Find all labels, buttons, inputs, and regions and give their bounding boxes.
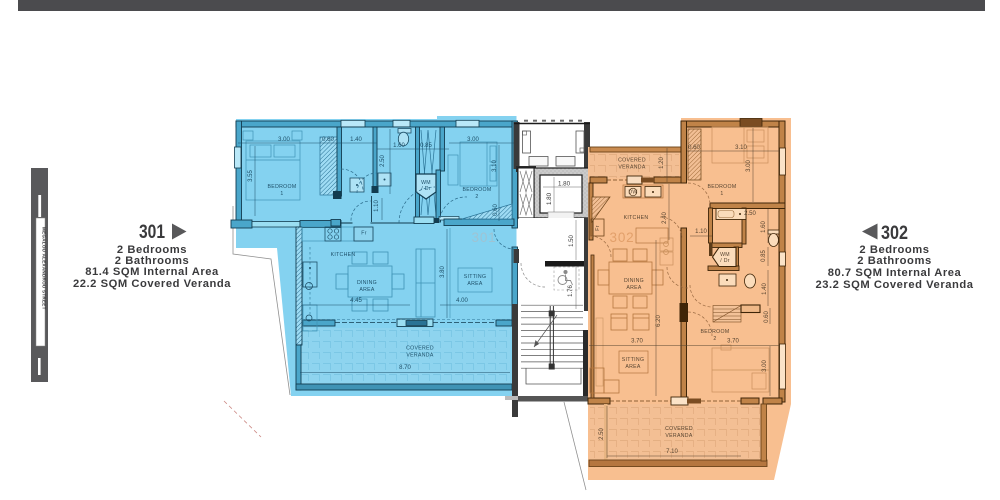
svg-text:2.50: 2.50 [744,211,756,217]
svg-text:22.2 SQM Covered Veranda: 22.2 SQM Covered Veranda [73,278,231,290]
svg-text:0.60: 0.60 [322,137,334,143]
svg-text:80.7 SQM Internal Area: 80.7 SQM Internal Area [828,267,962,279]
svg-text:1.10: 1.10 [374,200,380,212]
svg-text:3.70: 3.70 [631,339,643,345]
svg-text:VERANDA: VERANDA [406,353,433,359]
svg-text:1.60: 1.60 [761,221,767,233]
svg-text:3.55: 3.55 [248,170,254,182]
svg-text:BEDROOM: BEDROOM [701,329,730,335]
svg-text:VERANDA: VERANDA [665,433,692,439]
svg-text:3.00: 3.00 [746,160,752,172]
svg-text:302: 302 [881,222,908,244]
svg-text:1.40: 1.40 [762,283,768,295]
svg-text:3.10: 3.10 [735,145,747,151]
svg-text:AREA: AREA [626,285,642,291]
svg-text:0.60: 0.60 [493,204,499,216]
svg-text:1.80: 1.80 [546,192,553,205]
svg-text:301: 301 [472,230,497,245]
svg-text:KITCHEN: KITCHEN [331,252,356,258]
svg-text:1: 1 [280,191,283,197]
svg-text:1.40: 1.40 [350,137,362,143]
svg-text:4.00: 4.00 [456,298,468,304]
svg-text:1.20: 1.20 [659,157,665,169]
svg-text:BEDROOM: BEDROOM [463,187,492,193]
svg-text:81.4 SQM Internal Area: 81.4 SQM Internal Area [85,266,219,278]
svg-text:DINING: DINING [357,280,377,286]
svg-text:2: 2 [475,194,478,200]
svg-text:4.45: 4.45 [350,298,362,304]
svg-text:Fr: Fr [595,225,601,231]
svg-text:23.2 SQM Covered Veranda: 23.2 SQM Covered Veranda [815,279,973,291]
svg-text:1.76: 1.76 [568,285,574,297]
svg-text:2.50: 2.50 [380,155,386,167]
svg-text:1.50: 1.50 [569,235,575,247]
svg-text:1.10: 1.10 [695,229,707,235]
svg-text:0.85: 0.85 [420,143,432,149]
svg-text:SITTING: SITTING [464,274,487,280]
svg-text:BEDROOM: BEDROOM [708,184,737,190]
svg-text:2: 2 [713,336,716,342]
svg-text:3.00: 3.00 [762,360,768,372]
svg-text:Fr: Fr [361,231,367,237]
svg-text:3.80: 3.80 [440,266,446,278]
svg-text:8.70: 8.70 [399,365,411,371]
svg-text:DINING: DINING [624,278,644,284]
svg-text:1: 1 [720,191,723,197]
svg-text:AREA: AREA [625,364,641,370]
svg-text:0.60: 0.60 [688,145,700,151]
svg-text:SITTING: SITTING [622,357,645,363]
svg-text:3.70: 3.70 [727,339,739,345]
svg-text:3.00: 3.00 [467,137,479,143]
svg-text:AREA: AREA [359,287,375,293]
svg-text:2 Bathrooms: 2 Bathrooms [857,255,931,267]
svg-text:/ Dr: / Dr [421,186,431,192]
svg-text:KITCHEN: KITCHEN [624,215,649,221]
svg-text:302: 302 [610,230,635,245]
svg-text:VERANDA: VERANDA [618,165,645,171]
svg-text:1.60: 1.60 [393,143,405,149]
svg-text:2.40: 2.40 [662,212,668,224]
svg-text:6.20: 6.20 [656,315,662,327]
svg-text:301: 301 [139,221,165,243]
svg-text:2.50: 2.50 [599,428,605,440]
svg-text:BEDROOM: BEDROOM [268,184,297,190]
svg-text:7.10: 7.10 [666,449,678,455]
svg-text:1.80: 1.80 [558,181,571,188]
svg-text:AREA: AREA [467,281,483,287]
svg-text:COVERED: COVERED [665,426,693,432]
svg-text:0.85: 0.85 [761,250,767,262]
svg-text:MEGALOU ALEXANDROU STREET: MEGALOU ALEXANDROU STREET [41,227,46,310]
svg-text:COVERED: COVERED [618,158,646,164]
svg-text:COVERED: COVERED [406,346,434,352]
svg-text:0.60: 0.60 [764,311,770,323]
svg-text:3.00: 3.00 [278,137,290,143]
svg-text:DW: DW [628,190,637,196]
svg-text:/ Dr: / Dr [720,258,730,264]
svg-text:3.10: 3.10 [492,160,498,172]
